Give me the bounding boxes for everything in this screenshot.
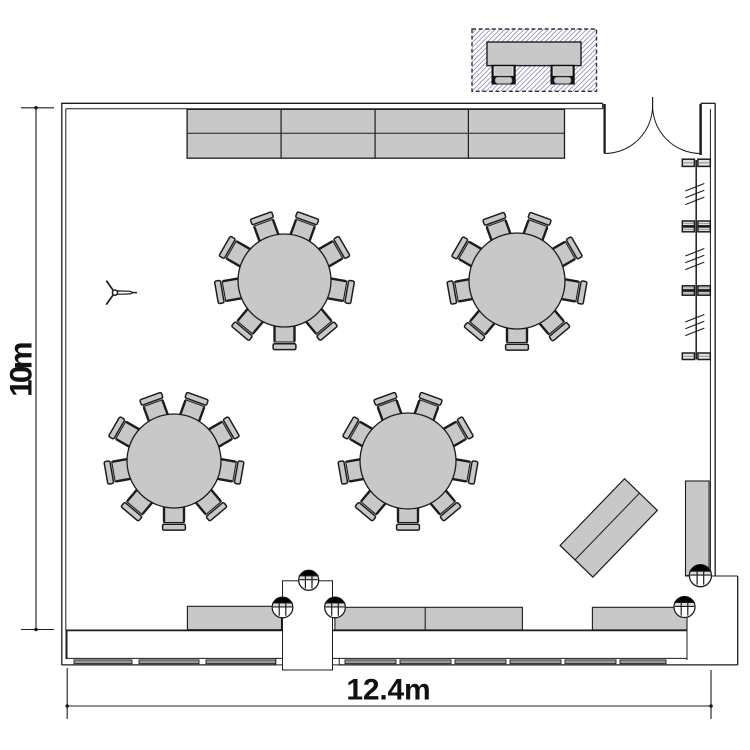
svg-text:10m: 10m [2,342,38,396]
svg-text:12.4m: 12.4m [346,674,430,707]
